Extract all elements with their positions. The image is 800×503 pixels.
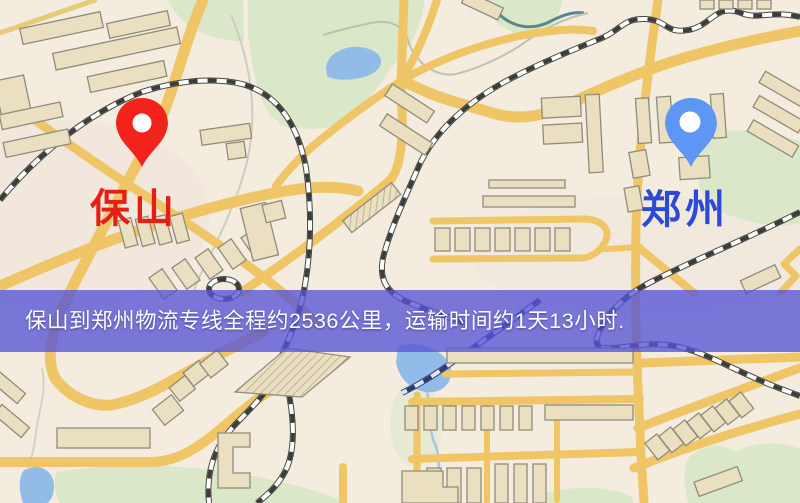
map-screenshot: 保山 郑州 保山到郑州物流专线全程约2536公里，运输时间约1天13小时. (0, 0, 800, 503)
map-canvas (0, 0, 800, 503)
origin-city-label: 保山 (90, 176, 178, 234)
route-info-banner: 保山到郑州物流专线全程约2536公里，运输时间约1天13小时. (0, 290, 800, 352)
route-info-text: 保山到郑州物流专线全程约2536公里，运输时间约1天13小时. (0, 290, 800, 352)
destination-city-label: 郑州 (641, 177, 729, 235)
